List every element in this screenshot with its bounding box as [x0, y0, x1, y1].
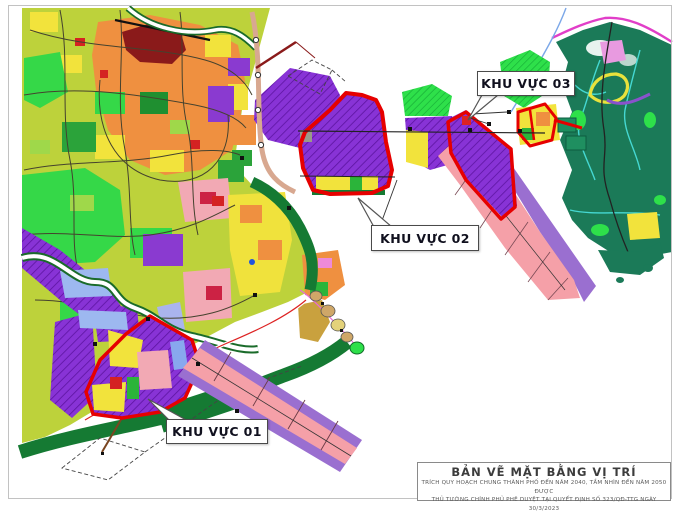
area-label-01: KHU VỰC 01 — [166, 419, 268, 444]
title-block: BẢN VẼ MẶT BẰNG VỊ TRÍ TRÍCH QUY HOẠCH C… — [417, 462, 671, 501]
map-screenshot: KHU VỰC 01 KHU VỰC 02 KHU VỰC 03 BẢN VẼ … — [0, 0, 680, 513]
area-label-02-text: KHU VỰC 02 — [380, 231, 470, 246]
title-block-line1: TRÍCH QUY HOẠCH CHUNG THÀNH PHỐ ĐẾN NĂM … — [418, 479, 670, 496]
area-label-02: KHU VỰC 02 — [371, 225, 479, 251]
title-block-line2: THỦ TƯỚNG CHÍNH PHỦ PHÊ DUYỆT TẠI QUYẾT … — [418, 496, 670, 513]
area-label-03: KHU VỰC 03 — [477, 71, 575, 96]
area-label-03-text: KHU VỰC 03 — [481, 76, 571, 91]
area-label-01-text: KHU VỰC 01 — [172, 424, 262, 439]
title-block-title: BẢN VẼ MẶT BẰNG VỊ TRÍ — [418, 465, 670, 479]
